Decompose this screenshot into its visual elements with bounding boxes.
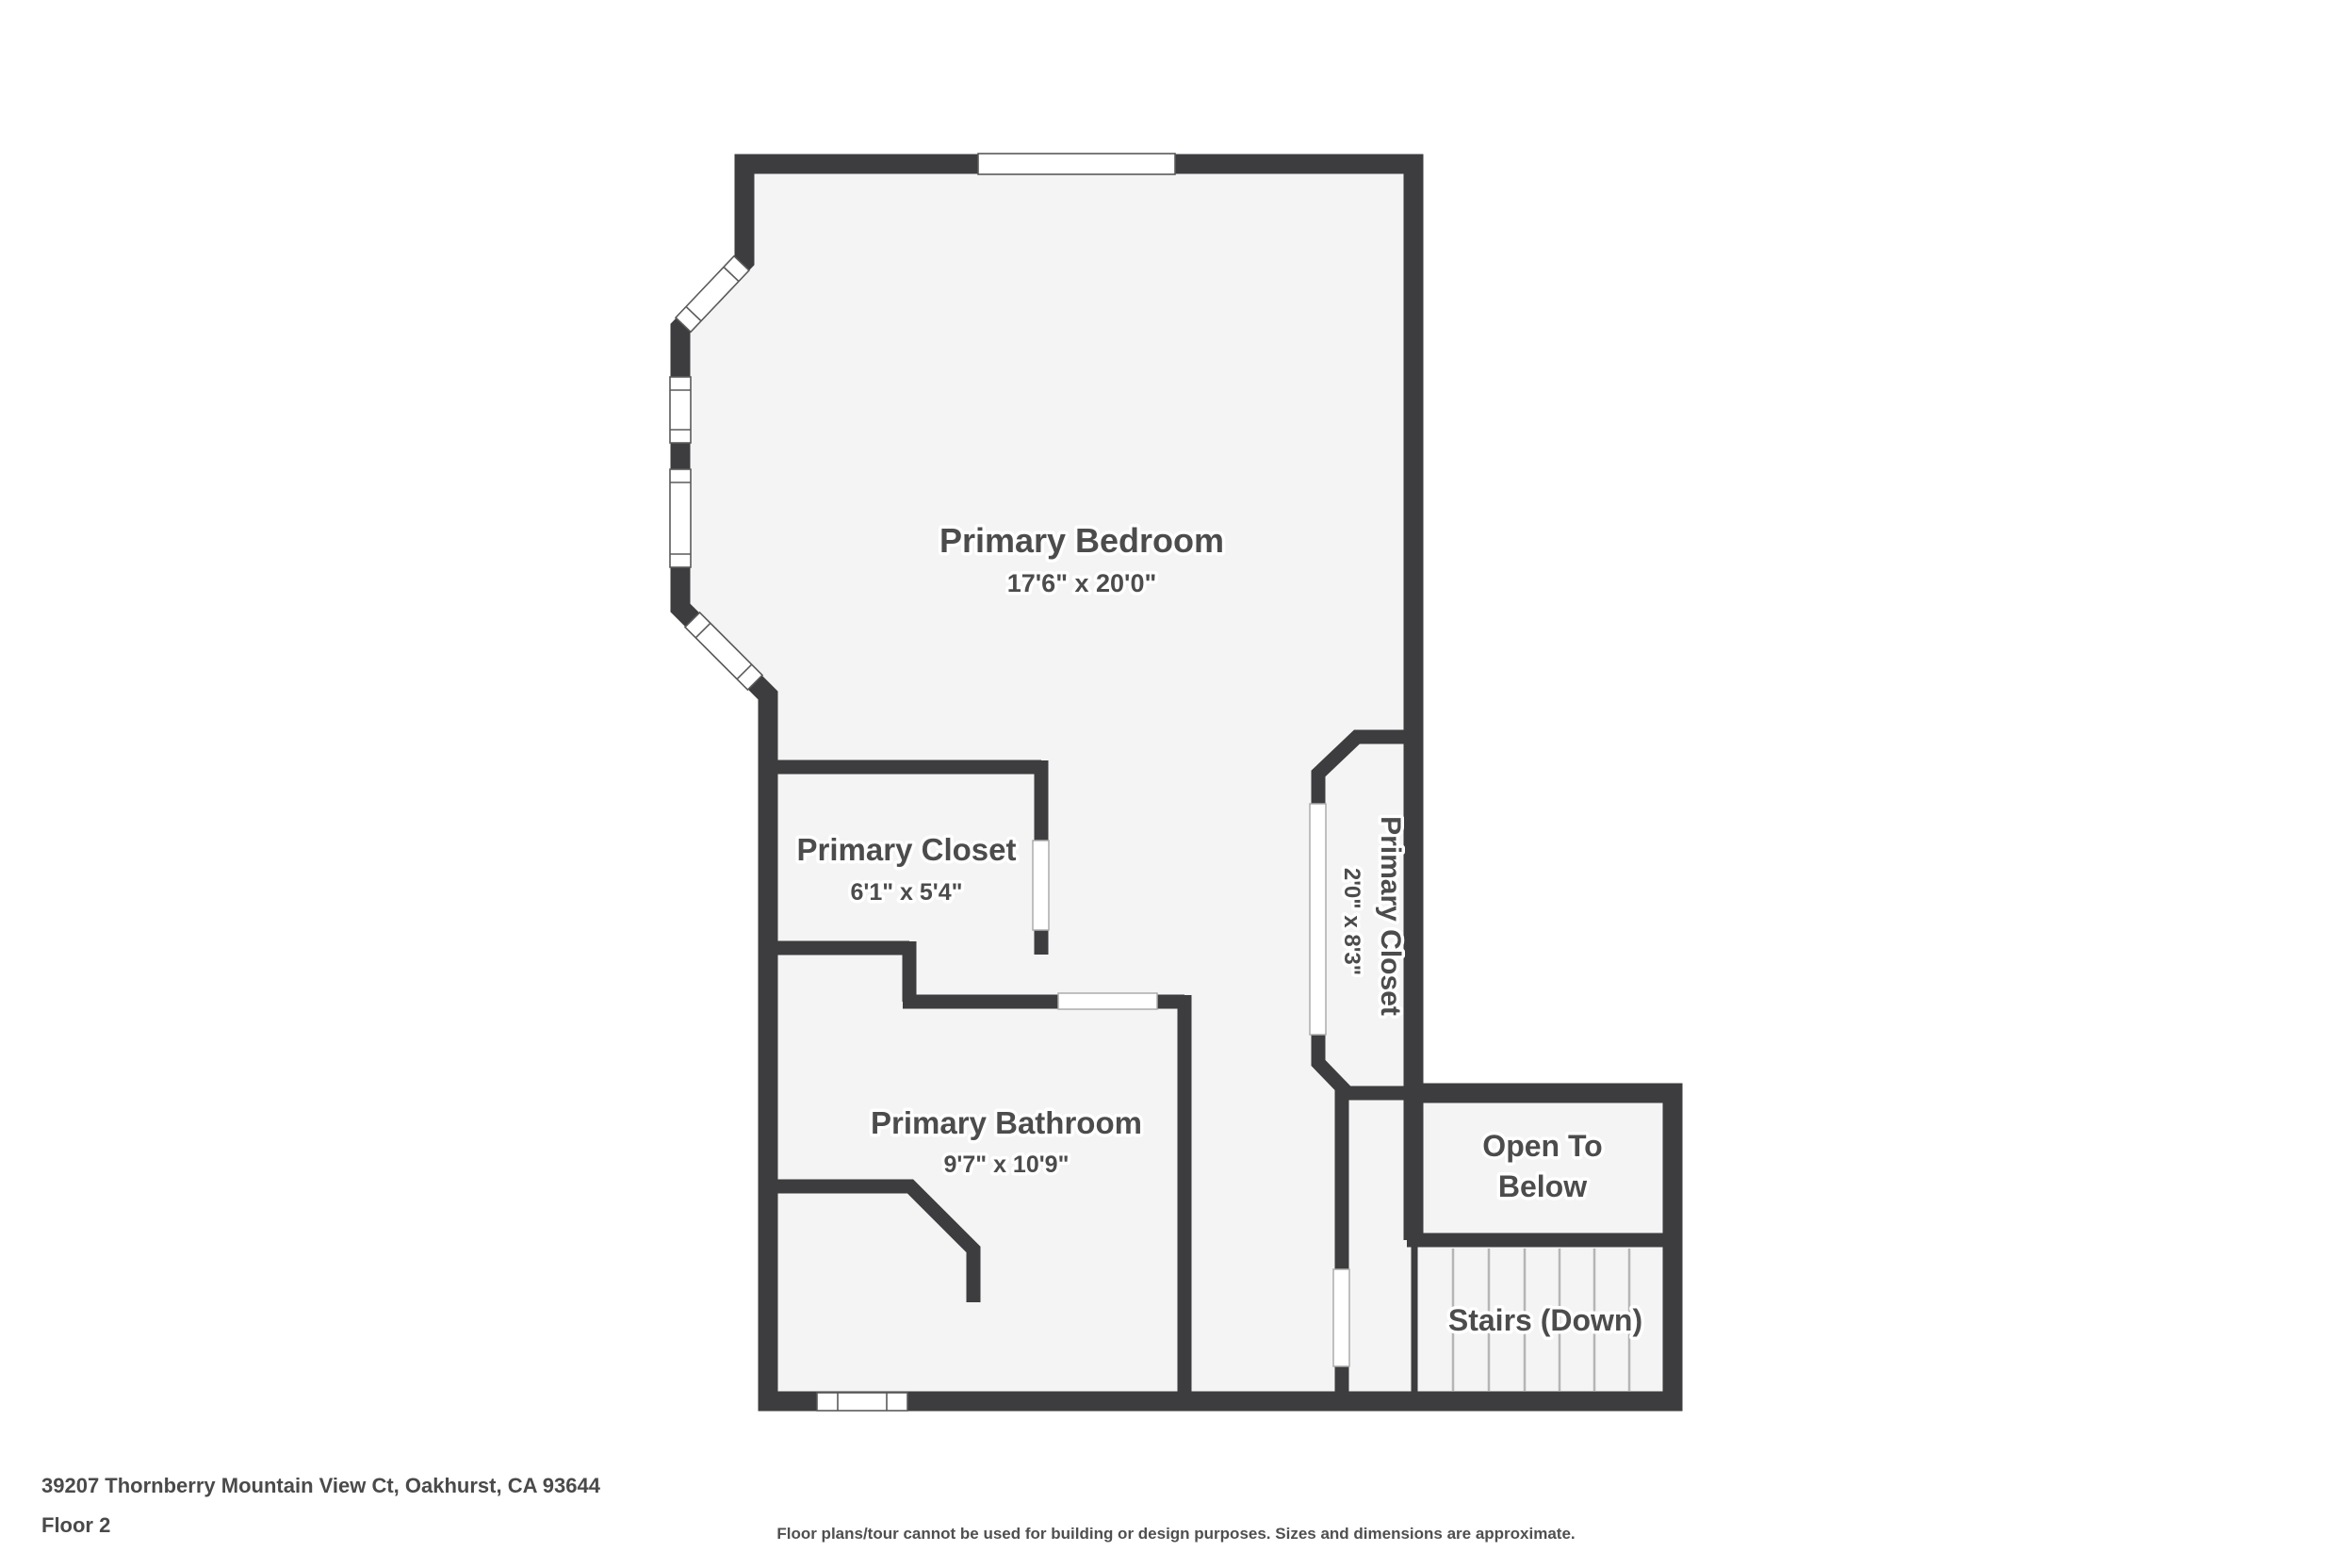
- closet-right-dims: 2'0" x 8'3": [1339, 868, 1364, 975]
- floor-plan: Primary Bedroom 17'6" x 20'0" Primary Cl…: [0, 0, 2352, 1568]
- bathroom-window: [817, 1393, 907, 1411]
- closet-right-door-opening: [1310, 804, 1326, 1035]
- closet-left-door-opening: [1033, 841, 1049, 930]
- bedroom-top-window: [978, 154, 1175, 174]
- bedroom-label: Primary Bedroom: [939, 521, 1224, 560]
- bedroom-dims: 17'6" x 20'0": [1007, 569, 1157, 597]
- floor-area: [671, 155, 1682, 1411]
- bathroom-dims: 9'7" x 10'9": [944, 1151, 1070, 1178]
- bay-window-2: [670, 469, 691, 567]
- disclaimer-text: Floor plans/tour cannot be used for buil…: [0, 1525, 2352, 1543]
- open-to-below-label-line2: Below: [1498, 1169, 1587, 1203]
- stairs-label: Stairs (Down): [1448, 1303, 1642, 1337]
- bathroom-door-opening: [1058, 993, 1157, 1009]
- bathroom-label: Primary Bathroom: [871, 1105, 1142, 1140]
- open-to-below-label-line1: Open To: [1482, 1129, 1602, 1163]
- property-address: 39207 Thornberry Mountain View Ct, Oakhu…: [41, 1474, 600, 1498]
- landing-door-opening: [1333, 1269, 1349, 1366]
- closet-left-label: Primary Closet: [797, 832, 1017, 867]
- closet-right-label: Primary Closet: [1375, 816, 1406, 1016]
- bay-window-1: [670, 377, 691, 443]
- closet-left-dims: 6'1" x 5'4": [850, 879, 962, 906]
